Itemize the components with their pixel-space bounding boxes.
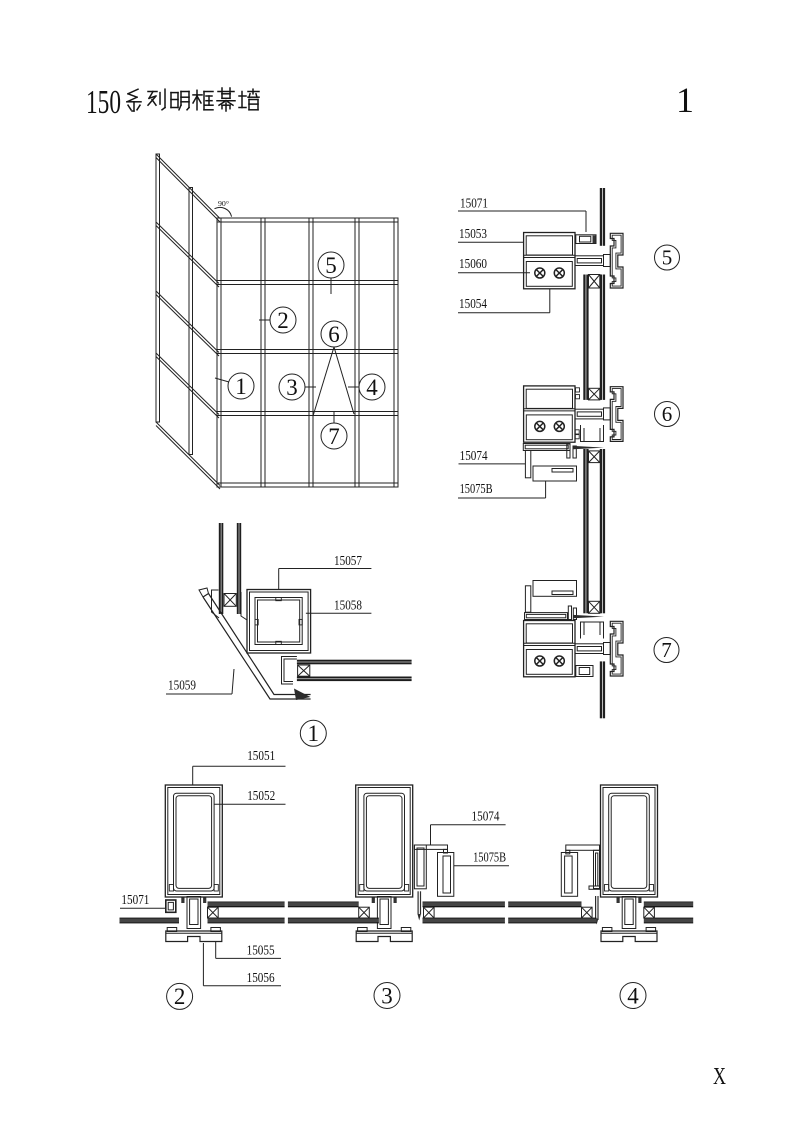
svg-text:15057: 15057 <box>334 553 362 568</box>
svg-text:15071: 15071 <box>121 892 149 907</box>
svg-text:15051: 15051 <box>247 748 275 763</box>
svg-text:5: 5 <box>325 253 337 278</box>
svg-text:15074: 15074 <box>460 448 488 463</box>
svg-text:1: 1 <box>676 80 694 120</box>
svg-text:4: 4 <box>627 983 639 1008</box>
svg-text:6: 6 <box>662 402 673 426</box>
svg-text:6: 6 <box>328 322 340 347</box>
svg-text:15075B: 15075B <box>473 849 506 864</box>
svg-text:15074: 15074 <box>472 809 500 824</box>
svg-text:15055: 15055 <box>247 943 275 958</box>
svg-text:15071: 15071 <box>460 196 488 211</box>
svg-text:3: 3 <box>381 983 393 1008</box>
svg-text:2: 2 <box>277 308 289 333</box>
svg-text:15060: 15060 <box>459 256 487 271</box>
svg-text:15058: 15058 <box>334 597 362 612</box>
svg-text:7: 7 <box>328 424 340 449</box>
svg-text:1: 1 <box>308 721 320 746</box>
svg-text:3: 3 <box>286 375 298 400</box>
svg-text:15075B: 15075B <box>460 481 493 496</box>
svg-text:5: 5 <box>662 246 673 270</box>
svg-text:90°: 90° <box>218 200 229 208</box>
svg-text:15059: 15059 <box>168 678 196 693</box>
svg-text:15054: 15054 <box>459 296 487 311</box>
svg-text:150: 150 <box>86 84 121 121</box>
svg-text:15053: 15053 <box>459 226 487 241</box>
svg-text:1: 1 <box>235 374 247 399</box>
svg-text:15056: 15056 <box>247 970 275 985</box>
svg-text:7: 7 <box>661 638 672 662</box>
svg-text:X: X <box>713 1064 726 1090</box>
svg-text:4: 4 <box>366 375 378 400</box>
svg-text:2: 2 <box>174 984 186 1009</box>
svg-text:15052: 15052 <box>247 788 275 803</box>
